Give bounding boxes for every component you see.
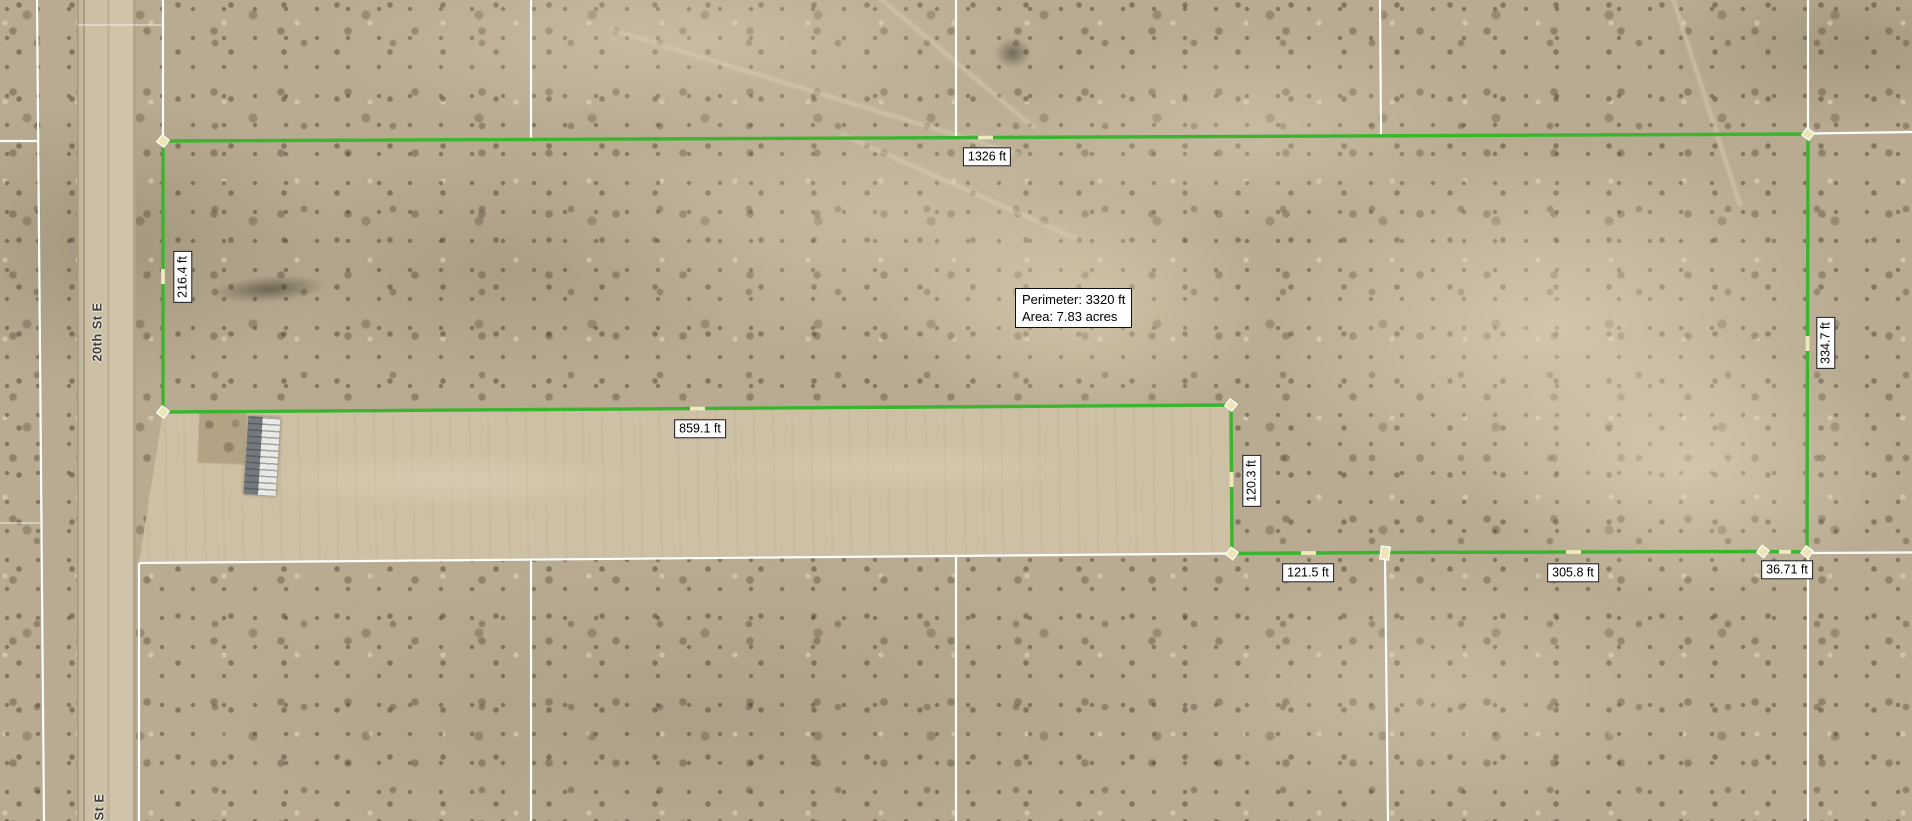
vertex-handle[interactable] bbox=[1380, 546, 1391, 560]
road-label-20th-st-e-partial: St E bbox=[92, 794, 107, 821]
vertex-handle[interactable] bbox=[1802, 128, 1815, 141]
vertex-handle[interactable] bbox=[157, 406, 170, 419]
measurement-label-south-edge-west: 121.5 ft bbox=[1282, 563, 1334, 582]
measurement-label-north-edge: 1326 ft bbox=[963, 147, 1011, 166]
area-value: Area: 7.83 acres bbox=[1022, 308, 1125, 325]
measurement-label-south-edge-east: 36.71 ft bbox=[1761, 560, 1813, 579]
measurement-label-inner-north-edge: 859.1 ft bbox=[674, 419, 726, 438]
measurement-overlay bbox=[0, 0, 1912, 821]
road-label-20th-st-e: 20th St E bbox=[90, 302, 105, 361]
vertex-handles bbox=[157, 128, 1815, 560]
map-viewport: { "map": { "road": { "label": "20th St E… bbox=[0, 0, 1912, 821]
measurement-summary-box: Perimeter: 3320 ft Area: 7.83 acres bbox=[1015, 288, 1132, 328]
measurement-label-east-edge: 334.7 ft bbox=[1816, 317, 1835, 369]
vertex-handle[interactable] bbox=[1225, 399, 1238, 412]
vertex-handle[interactable] bbox=[1801, 546, 1814, 559]
vertex-handle[interactable] bbox=[1226, 547, 1239, 560]
measurement-label-inner-east-edge: 120.3 ft bbox=[1242, 455, 1261, 507]
segment-midpoint-handles bbox=[163, 138, 1808, 554]
measurement-polygon bbox=[163, 134, 1808, 554]
perimeter-value: Perimeter: 3320 ft bbox=[1022, 291, 1125, 308]
vertex-handle[interactable] bbox=[157, 135, 170, 148]
vertex-handle[interactable] bbox=[1757, 545, 1770, 558]
measurement-label-west-edge: 216.4 ft bbox=[173, 251, 192, 303]
measurement-label-south-edge-middle: 305.8 ft bbox=[1547, 563, 1599, 582]
